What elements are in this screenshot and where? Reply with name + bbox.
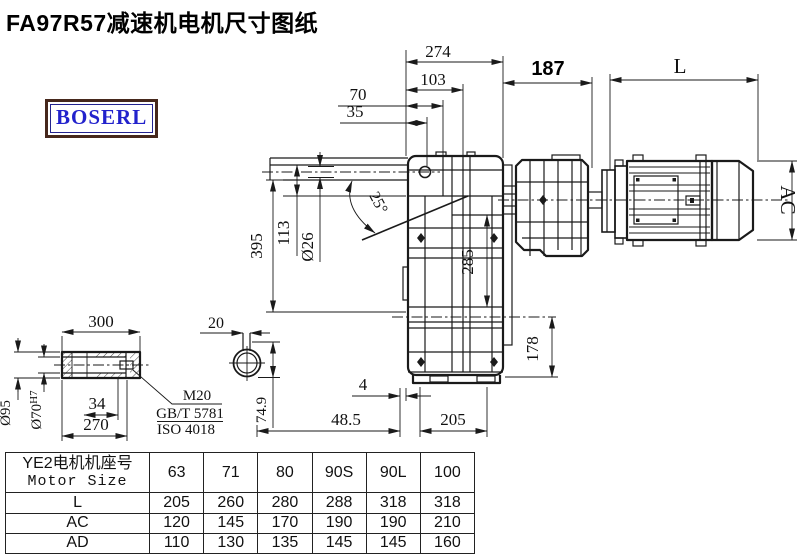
note-gb-label: GB/T 5781 — [156, 406, 224, 422]
dim-outer-dia-label: Ø95 — [0, 400, 14, 426]
table-cell: 120 — [150, 513, 204, 533]
dim-20-label: 20 — [208, 315, 224, 332]
bolt-diamond — [417, 233, 425, 243]
row-label: AD — [6, 533, 150, 553]
bolt-diamond — [417, 357, 425, 367]
table-cell: 210 — [420, 513, 474, 533]
table-header-size: 90S — [312, 453, 366, 493]
dim-hole-dia-label: Ø26 — [298, 232, 317, 261]
table-cell: 260 — [204, 493, 258, 513]
table-header-size: 100 — [420, 453, 474, 493]
bolt-diamond — [490, 233, 498, 243]
bolt-diamond — [490, 357, 498, 367]
motor-size-table: YE2电机机座号 Motor Size 63 71 80 90S 90L 100… — [5, 452, 475, 554]
dim-L-label: L — [674, 54, 687, 78]
table-cell: 130 — [204, 533, 258, 553]
note-thread-label: M20 — [183, 388, 211, 404]
table-row: L 205 260 280 288 318 318 — [6, 493, 475, 513]
dim-274-label: 274 — [425, 42, 451, 61]
r57-reducer — [503, 155, 602, 256]
table-cell: 190 — [366, 513, 420, 533]
hollow-shaft-detail: 300 Ø95 Ø70H7 34 270 M20 GB/T 5781 — [0, 312, 224, 441]
dim-395-label: 395 — [247, 233, 266, 259]
table-header-size: 63 — [150, 453, 204, 493]
table-header-motor-size: YE2电机机座号 Motor Size — [6, 453, 150, 493]
table-cell: 170 — [258, 513, 312, 533]
dim-205-label: 205 — [440, 410, 466, 429]
fan-cover — [712, 161, 753, 240]
table-cell: 135 — [258, 533, 312, 553]
table-cell: 288 — [312, 493, 366, 513]
dim-113-label: 113 — [274, 221, 293, 246]
dim-bore-dia-label: Ø70H7 — [28, 390, 45, 430]
table-cell: 110 — [150, 533, 204, 553]
dim-178-label: 178 — [523, 336, 542, 362]
table-cell: 145 — [312, 533, 366, 553]
table-cell: 280 — [258, 493, 312, 513]
table-cell: 318 — [420, 493, 474, 513]
table-cell: 145 — [366, 533, 420, 553]
row-label: AC — [6, 513, 150, 533]
table-cell: 145 — [204, 513, 258, 533]
dim-187-label: 187 — [531, 58, 564, 80]
table-cell: 160 — [420, 533, 474, 553]
drawing-page: FA97R57减速机电机尺寸图纸 BOSERL — [0, 0, 800, 555]
dim-74-9-label: 74.9 — [254, 397, 270, 423]
dim-285-label: 285 — [458, 249, 477, 275]
table-header-size: 71 — [204, 453, 258, 493]
dim-AC-label: AC — [776, 185, 800, 214]
table-cell: 205 — [150, 493, 204, 513]
note-iso-label: ISO 4018 — [157, 422, 215, 438]
dim-48-5-label: 48.5 — [331, 410, 361, 429]
row-label: L — [6, 493, 150, 513]
table-row: AC 120 145 170 190 190 210 — [6, 513, 475, 533]
dim-angle-label: 25° — [365, 189, 391, 217]
table-header-size: 90L — [366, 453, 420, 493]
table-header-size: 80 — [258, 453, 312, 493]
bottom-dimensions: 4 48.5 205 — [257, 375, 487, 437]
table-cell: 318 — [366, 493, 420, 513]
dim-34-label: 34 — [89, 394, 107, 413]
dim-300-label: 300 — [88, 312, 114, 331]
table-row: AD 110 130 135 145 145 160 — [6, 533, 475, 553]
dim-103-label: 103 — [420, 70, 446, 89]
table-cell: 190 — [312, 513, 366, 533]
dim-35-label: 35 — [347, 102, 364, 121]
dim-270-label: 270 — [83, 415, 109, 434]
dim-4-label: 4 — [359, 375, 368, 394]
